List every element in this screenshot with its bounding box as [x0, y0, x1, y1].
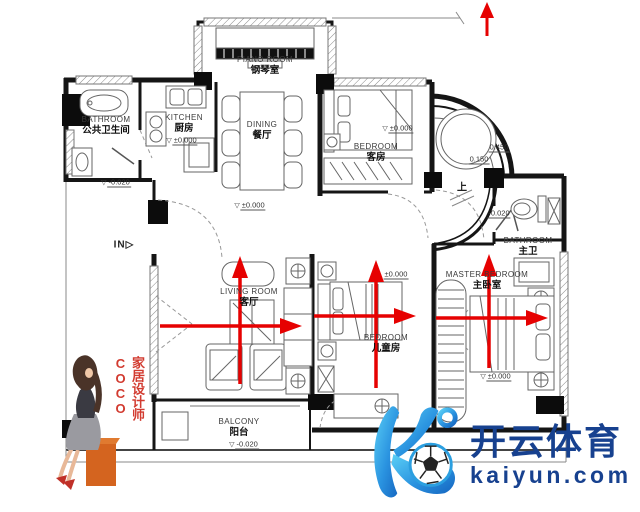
designer-badge-text: 家居设计师COCO	[113, 356, 147, 476]
kaiyun-watermark: 开云体育 kaiyun.com	[360, 400, 640, 512]
master-bath-fixtures	[511, 196, 560, 224]
flow-arrow-top-up	[480, 2, 494, 36]
room-label-master-bath: BATHROOM 主卫	[504, 236, 553, 258]
room-name-en: PIANO ROOM	[237, 55, 293, 65]
soccer-ball-icon	[410, 444, 451, 485]
guest-bed	[324, 90, 412, 184]
balcony-cabinet	[162, 412, 188, 440]
level-triangle-icon: ▽	[101, 180, 106, 187]
level-marker-tub-step: 0.150	[469, 155, 490, 164]
level-triangle-icon: ▽	[480, 374, 485, 381]
level-triangle-icon: ▽	[382, 126, 387, 133]
level-marker-tub-rim: 0.450	[489, 143, 510, 152]
room-label-master: MASTER BEDROOM 主卧室	[446, 270, 529, 292]
room-label-living: LIVING ROOM 客厅	[220, 287, 278, 309]
entry-in-marker: IN▷	[114, 240, 135, 251]
level-triangle-icon: ▽	[234, 203, 239, 210]
room-label-balcony: BALCONY 阳台	[218, 417, 259, 439]
designer-illustration	[56, 352, 120, 510]
room-name-zh: 钢琴室	[237, 65, 293, 77]
level-marker-kids: ±0.000	[384, 270, 409, 279]
room-label-dining: DINING 餐厅	[247, 120, 277, 142]
entry-arrow-icon: ▷	[126, 240, 135, 251]
level-marker-hall: ▽±0.000	[234, 201, 265, 210]
step-up-marker: 上	[457, 179, 467, 194]
room-label-kitchen: KITCHEN 厨房	[165, 113, 203, 135]
stool	[86, 444, 116, 486]
room-label-kids: BEDROOM 儿童房	[364, 333, 408, 355]
level-marker-guest: ▽±0.000	[382, 124, 413, 133]
watermark-domain: kaiyun.com	[470, 462, 632, 489]
watermark-brand: 开云体育	[470, 423, 632, 461]
level-triangle-icon: ▽	[166, 138, 171, 145]
room-label-public-bath: BATHROOM 公共卫生间	[82, 115, 131, 137]
level-marker-balcony: ▽-0.020	[229, 440, 259, 449]
room-label-piano: PIANO ROOM 钢琴室	[237, 55, 293, 77]
level-marker-kitchen: ▽±0.000	[166, 136, 197, 145]
level-marker-entry: ▽-0.020	[101, 178, 131, 187]
level-triangle-icon: ▽	[229, 442, 234, 449]
room-label-guest: BEDROOM 客房	[354, 142, 398, 164]
floorplan-page: PIANO ROOM 钢琴室 BATHROOM 公共卫生间 KITCHEN 厨房…	[0, 0, 640, 512]
level-marker-master-bath-entry: -0.020	[487, 209, 510, 218]
kaiyun-logo-icon	[360, 403, 466, 509]
level-marker-master: ▽±0.000	[480, 372, 511, 381]
